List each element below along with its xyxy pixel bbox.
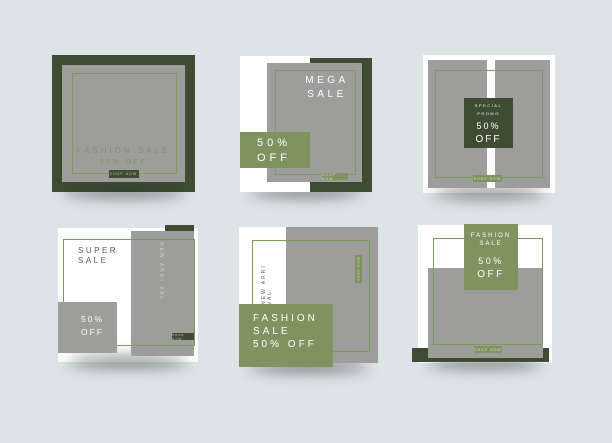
discount-line: OFF bbox=[257, 151, 310, 166]
promo-card-super-sale: SUPER SALE NEW ARRI VAL 50% OFF SHOP NOW bbox=[58, 228, 198, 362]
sale-band: FASHION SALE 50% OFF bbox=[239, 304, 333, 367]
promo-card-mega-sale: MEGA SALE SHOP NOW 50% OFF bbox=[240, 56, 372, 192]
title-line: MEGA bbox=[296, 74, 358, 88]
discount-block: 50% OFF bbox=[58, 302, 117, 353]
tag-line: SALE bbox=[464, 241, 518, 247]
vertical-label: NEW ARRI VAL bbox=[261, 247, 273, 305]
promo-card-new-arrival: NEW ARRI VAL SHOP NOW FASHION SALE 50% O… bbox=[239, 227, 378, 367]
card-title: FASHION SALE bbox=[52, 146, 195, 155]
card-title: MEGA SALE bbox=[296, 74, 358, 102]
badge-line: OFF bbox=[476, 134, 502, 145]
hanging-tag: FASHION SALE 50% OFF bbox=[464, 224, 518, 290]
shop-now-button[interactable]: SHOP NOW bbox=[172, 333, 194, 340]
discount-line: 50% bbox=[257, 136, 310, 151]
card-shadow bbox=[68, 356, 188, 368]
shop-now-button[interactable]: SHOP NOW bbox=[474, 346, 502, 353]
discount-text: 50% OFF bbox=[52, 159, 195, 166]
tag-line: 50% bbox=[464, 256, 518, 266]
band-line: SALE bbox=[253, 325, 333, 338]
shop-now-button[interactable]: SHOP NOW bbox=[109, 170, 139, 178]
discount-line: OFF bbox=[81, 326, 104, 339]
badge-line: SPECIAL bbox=[475, 103, 502, 108]
card-shadow bbox=[433, 187, 545, 199]
shop-now-button[interactable]: SHOP NOW bbox=[322, 173, 348, 180]
title-line: SUPER bbox=[78, 246, 118, 256]
template-sheet: FASHION SALE 50% OFF SHOP NOW MEGA SALE … bbox=[0, 0, 612, 443]
band-line: 50% OFF bbox=[253, 338, 333, 351]
title-line: SALE bbox=[78, 256, 118, 266]
tag-line: FASHION bbox=[464, 233, 518, 239]
badge-line: PROMO bbox=[477, 111, 500, 116]
shop-now-button-vertical[interactable]: SHOP NOW bbox=[355, 255, 362, 283]
promo-card-framed-fashion-sale: FASHION SALE 50% OFF SHOP NOW bbox=[52, 55, 195, 192]
badge-line: 50% bbox=[476, 121, 500, 131]
discount-line: 50% bbox=[81, 313, 104, 326]
promo-card-special-promo: SPECIAL PROMO 50% OFF SHOP NOW bbox=[423, 55, 555, 193]
discount-band: 50% OFF bbox=[240, 132, 310, 168]
shop-now-button[interactable]: SHOP NOW bbox=[473, 175, 502, 182]
promo-badge: SPECIAL PROMO 50% OFF bbox=[464, 98, 513, 148]
band-line: FASHION bbox=[253, 312, 333, 325]
discount-text: 50% OFF bbox=[81, 313, 104, 339]
card-shadow bbox=[62, 186, 185, 198]
tag-line: OFF bbox=[464, 269, 518, 280]
promo-card-fashion-tag: FASHION SALE 50% OFF SHOP NOW bbox=[418, 225, 552, 363]
card-title: SUPER SALE bbox=[78, 246, 118, 266]
vertical-label: NEW ARRI VAL bbox=[158, 242, 164, 304]
title-line: SALE bbox=[296, 88, 358, 102]
